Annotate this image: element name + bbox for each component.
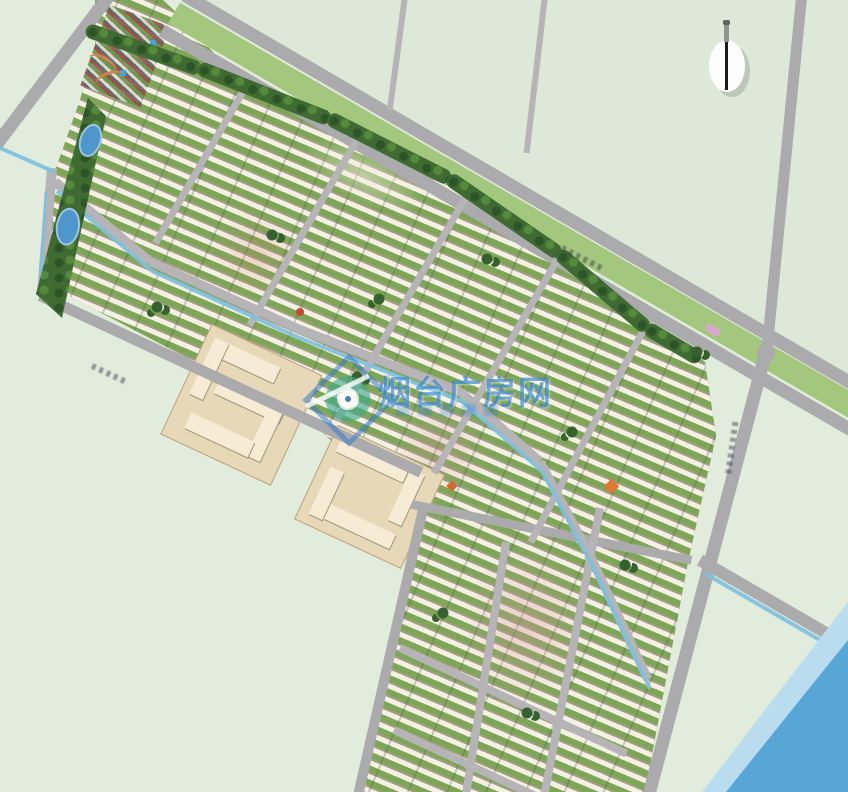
campus-building <box>324 504 396 549</box>
north-arrow-stem <box>724 24 729 42</box>
red-landmark <box>296 308 304 316</box>
tree-cluster <box>265 228 279 242</box>
north-arrow-knob <box>723 20 730 25</box>
canal-waterline <box>0 146 56 174</box>
watermark: 烟台广房网 <box>300 352 620 434</box>
tree-cluster <box>618 558 632 572</box>
site-plan-map: 烟台广房网 <box>0 0 848 792</box>
tree-cluster <box>690 345 704 359</box>
watermark-subtext-smudge <box>396 404 506 416</box>
road-label-smudge <box>91 363 130 385</box>
north-arrow-icon <box>709 40 745 92</box>
tree-cluster <box>150 300 164 314</box>
tree-cluster <box>480 252 494 266</box>
logo-ring <box>322 373 374 425</box>
road-junction <box>757 344 775 362</box>
tree-cluster <box>520 706 534 720</box>
tree-cluster <box>436 606 450 620</box>
tree-cluster <box>372 292 386 306</box>
north-arrow-needle <box>725 42 728 90</box>
campus-building <box>184 412 255 457</box>
